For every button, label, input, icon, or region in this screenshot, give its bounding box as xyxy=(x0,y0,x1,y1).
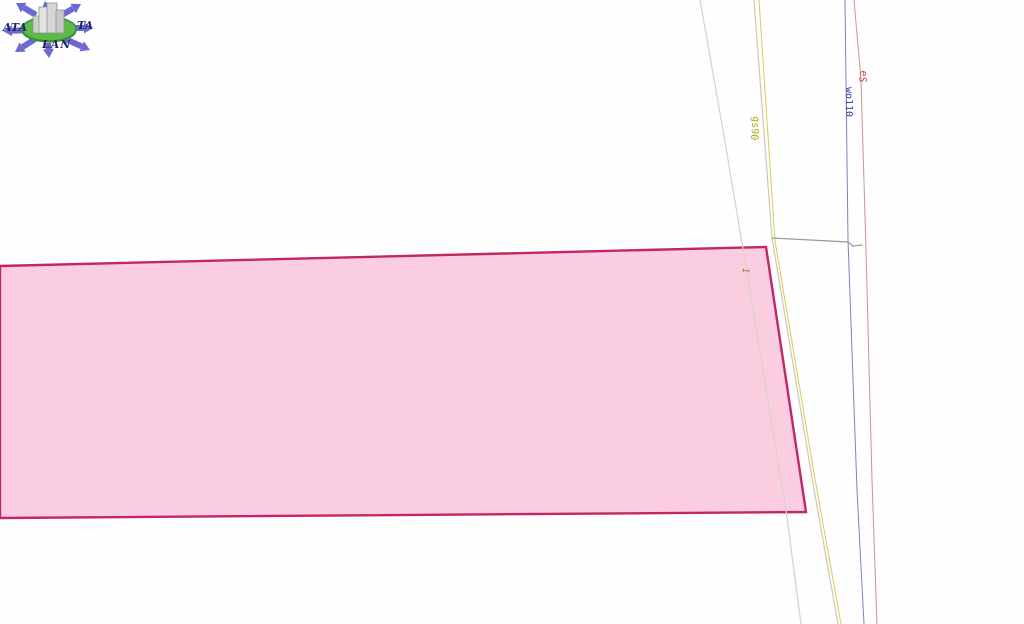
logo-text-right: TA xyxy=(77,20,93,31)
water-pipeline-label: wo110 xyxy=(843,87,854,117)
map-canvas[interactable]: gs90wo110eS1 ATA TA LAN xyxy=(0,0,1024,624)
logo-text-bottom: LAN xyxy=(42,39,71,50)
logo-text-left: ATA xyxy=(3,22,27,33)
gas-pipeline-label: gs90 xyxy=(748,116,761,141)
parcel-highlight[interactable] xyxy=(0,247,806,518)
power-line-label: eS xyxy=(856,70,869,84)
cadastral-map[interactable]: gs90wo110eS1 xyxy=(0,0,1024,624)
logo-buildings-icon xyxy=(33,3,64,33)
watermark-logo: ATA TA LAN xyxy=(0,0,110,62)
